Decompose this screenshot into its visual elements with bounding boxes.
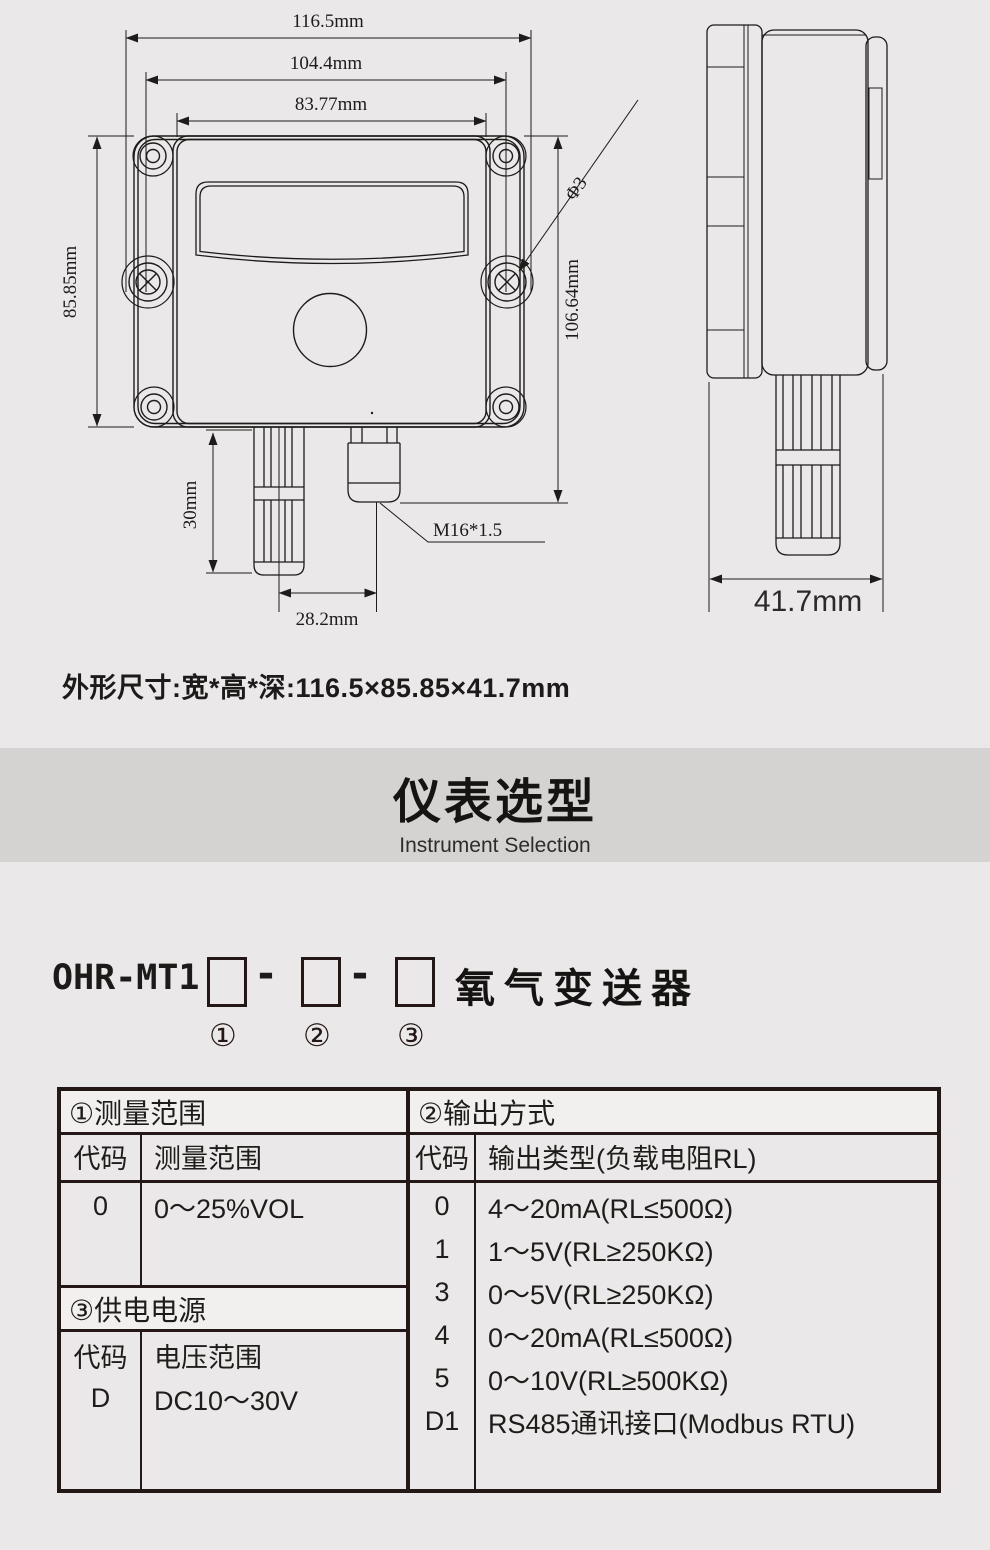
output-header: ②输出方式 [410,1091,937,1135]
model-separator-1: - [258,948,274,998]
probe-side [776,375,840,555]
model-slot-2 [301,957,341,1007]
range-col-code: 代码 [74,1135,128,1178]
dim-width-inner: 83.77mm [295,94,368,115]
range-header: ①测量范围 [61,1091,406,1135]
output-row-code: 0 [434,1185,449,1228]
output-row-code: 1 [434,1228,449,1271]
range-row-code: 0 [93,1185,108,1228]
range-row: 0 0～25%VOL [61,1183,406,1288]
dim-probe-length: 30mm [180,481,201,530]
dim-width-outer: 116.5mm [292,11,364,32]
dim-height-overall: 106.64mm [562,259,583,341]
display-window [196,182,468,264]
output-row-code: 3 [434,1271,449,1314]
slot-number-1: ① [209,1018,237,1054]
section-banner: 仪表选型 Instrument Selection [0,748,990,862]
output-col-code: 代码 [415,1135,469,1178]
technical-drawing: 116.5mm 104.4mm 83.77mm 85.85mm 106.64mm… [0,0,990,660]
output-row-value: 4～20mA(RL≤500Ω) [488,1185,937,1228]
model-prefix: OHR-MT1 [52,958,200,998]
output-row-value: 0～10V(RL≥500KΩ) [488,1357,937,1400]
side-view [707,25,887,612]
dim-height: 85.85mm [60,246,81,319]
range-subheader: 代码 测量范围 [61,1135,406,1183]
output-subheader: 代码 输出类型(负载电阻RL) [410,1135,937,1183]
lid-side [866,37,887,370]
dim-probe-offset: 28.2mm [296,609,359,630]
output-row-code: 4 [434,1314,449,1357]
output-row-value: 0～20mA(RL≤500Ω) [488,1314,937,1357]
clip-slot [869,88,882,179]
overall-dimensions-text: 外形尺寸:宽*高*深:116.5×85.85×41.7mm [62,666,570,705]
thread-label: M16*1.5 [433,520,502,541]
hole-label: Φ3 [561,173,592,204]
front-view [88,30,638,612]
selection-table: ①测量范围 代码 测量范围 0 0～25%VOL ③供电电源 代码 D 电压范围… [57,1087,941,1493]
output-rows: 0 1 3 4 5 D1 4～20mA(RL≤500Ω) 1～5V(RL≥250… [410,1183,937,1489]
datasheet-page: 116.5mm 104.4mm 83.77mm 85.85mm 106.64mm… [0,0,990,1550]
power-rows: 代码 D 电压范围 DC10～30V [61,1332,406,1489]
power-col-code: 代码 [74,1334,128,1377]
model-slot-3 [395,957,435,1007]
output-row-value: RS485通讯接口(Modbus RTU) [488,1400,937,1443]
power-row-value: DC10～30V [154,1377,406,1420]
dim-depth: 41.7mm [754,585,862,618]
sensor-window [294,294,367,367]
screw-tabs [122,136,533,427]
slot-number-3: ③ [397,1018,425,1054]
output-row-code: 5 [434,1357,449,1400]
output-row-code: D1 [425,1400,460,1443]
enclosure-side [762,30,868,375]
output-row-value: 1～5V(RL≥250KΩ) [488,1228,937,1271]
selection-table-left-pane: ①测量范围 代码 测量范围 0 0～25%VOL ③供电电源 代码 D 电压范围… [61,1091,410,1489]
power-header: ③供电电源 [61,1288,406,1332]
cable-gland [348,427,400,502]
model-slot-1 [207,957,247,1007]
output-col-value: 输出类型(负载电阻RL) [488,1135,937,1178]
range-col-value: 测量范围 [154,1135,406,1178]
banner-subtitle: Instrument Selection [0,834,990,858]
banner-title: 仪表选型 [0,762,990,832]
output-row-value: 0～5V(RL≥250KΩ) [488,1271,937,1314]
dim-width-holes: 104.4mm [290,53,363,74]
screws [129,143,526,420]
power-col-value: 电压范围 [154,1334,406,1377]
selection-table-right-pane: ②输出方式 代码 输出类型(负载电阻RL) 0 1 3 4 5 D1 4～20m… [410,1091,937,1489]
model-separator-2: - [352,948,368,998]
range-row-value: 0～25%VOL [154,1185,406,1228]
slot-number-2: ② [303,1018,331,1054]
enclosure-front [134,136,524,427]
power-row-code: D [91,1377,111,1420]
model-suffix: 氧气变送器 [455,956,700,1014]
